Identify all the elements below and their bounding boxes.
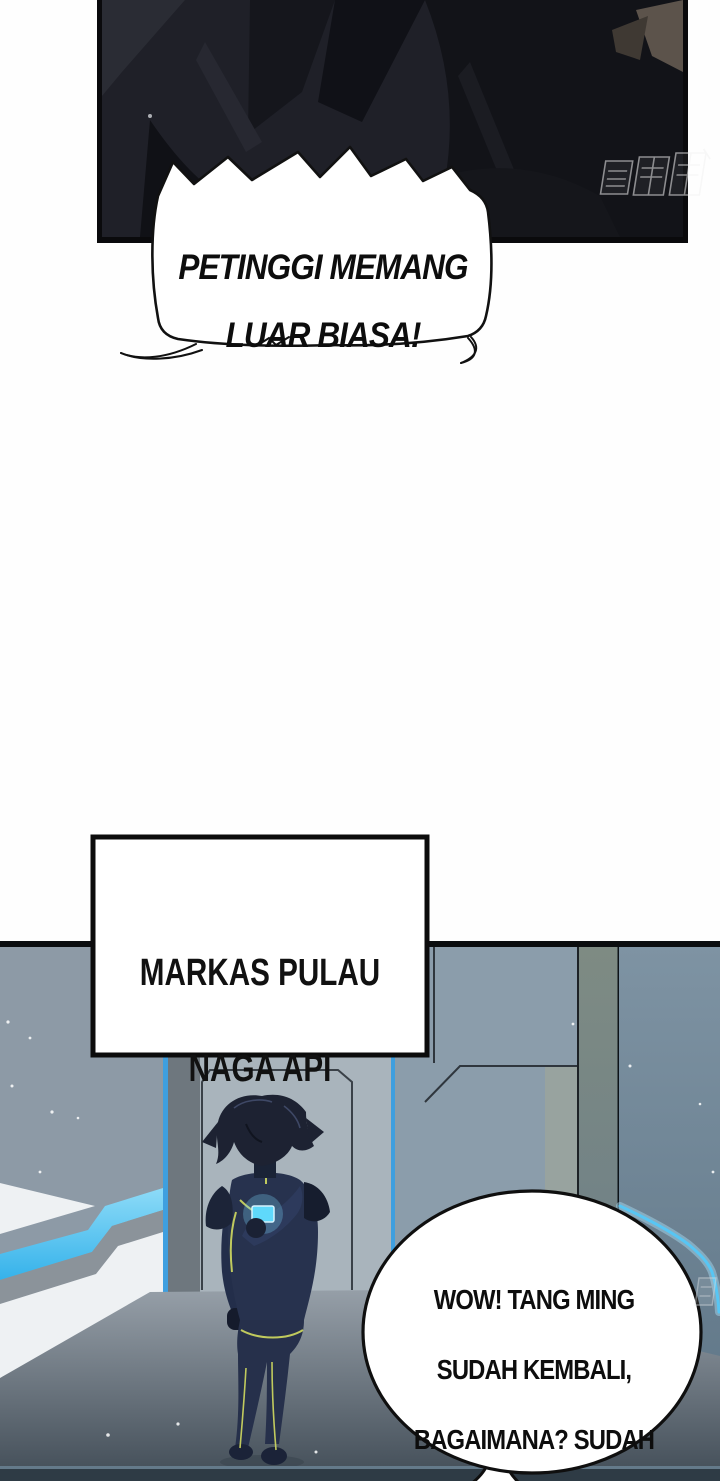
boot-back (229, 1444, 253, 1460)
boot-front (261, 1447, 287, 1465)
speech-bubble-burst (121, 147, 492, 363)
comic-artwork (0, 0, 720, 1481)
comic-page: PETINGGI MEMANG LUAR BIASA! MARKAS PULAU… (0, 0, 720, 1481)
watermark-partial-bottom-right (695, 1278, 716, 1305)
location-caption-box (93, 837, 427, 1055)
glove-right (246, 1218, 266, 1238)
floor-edge-line (0, 1466, 720, 1469)
bottom-band (0, 1469, 720, 1481)
